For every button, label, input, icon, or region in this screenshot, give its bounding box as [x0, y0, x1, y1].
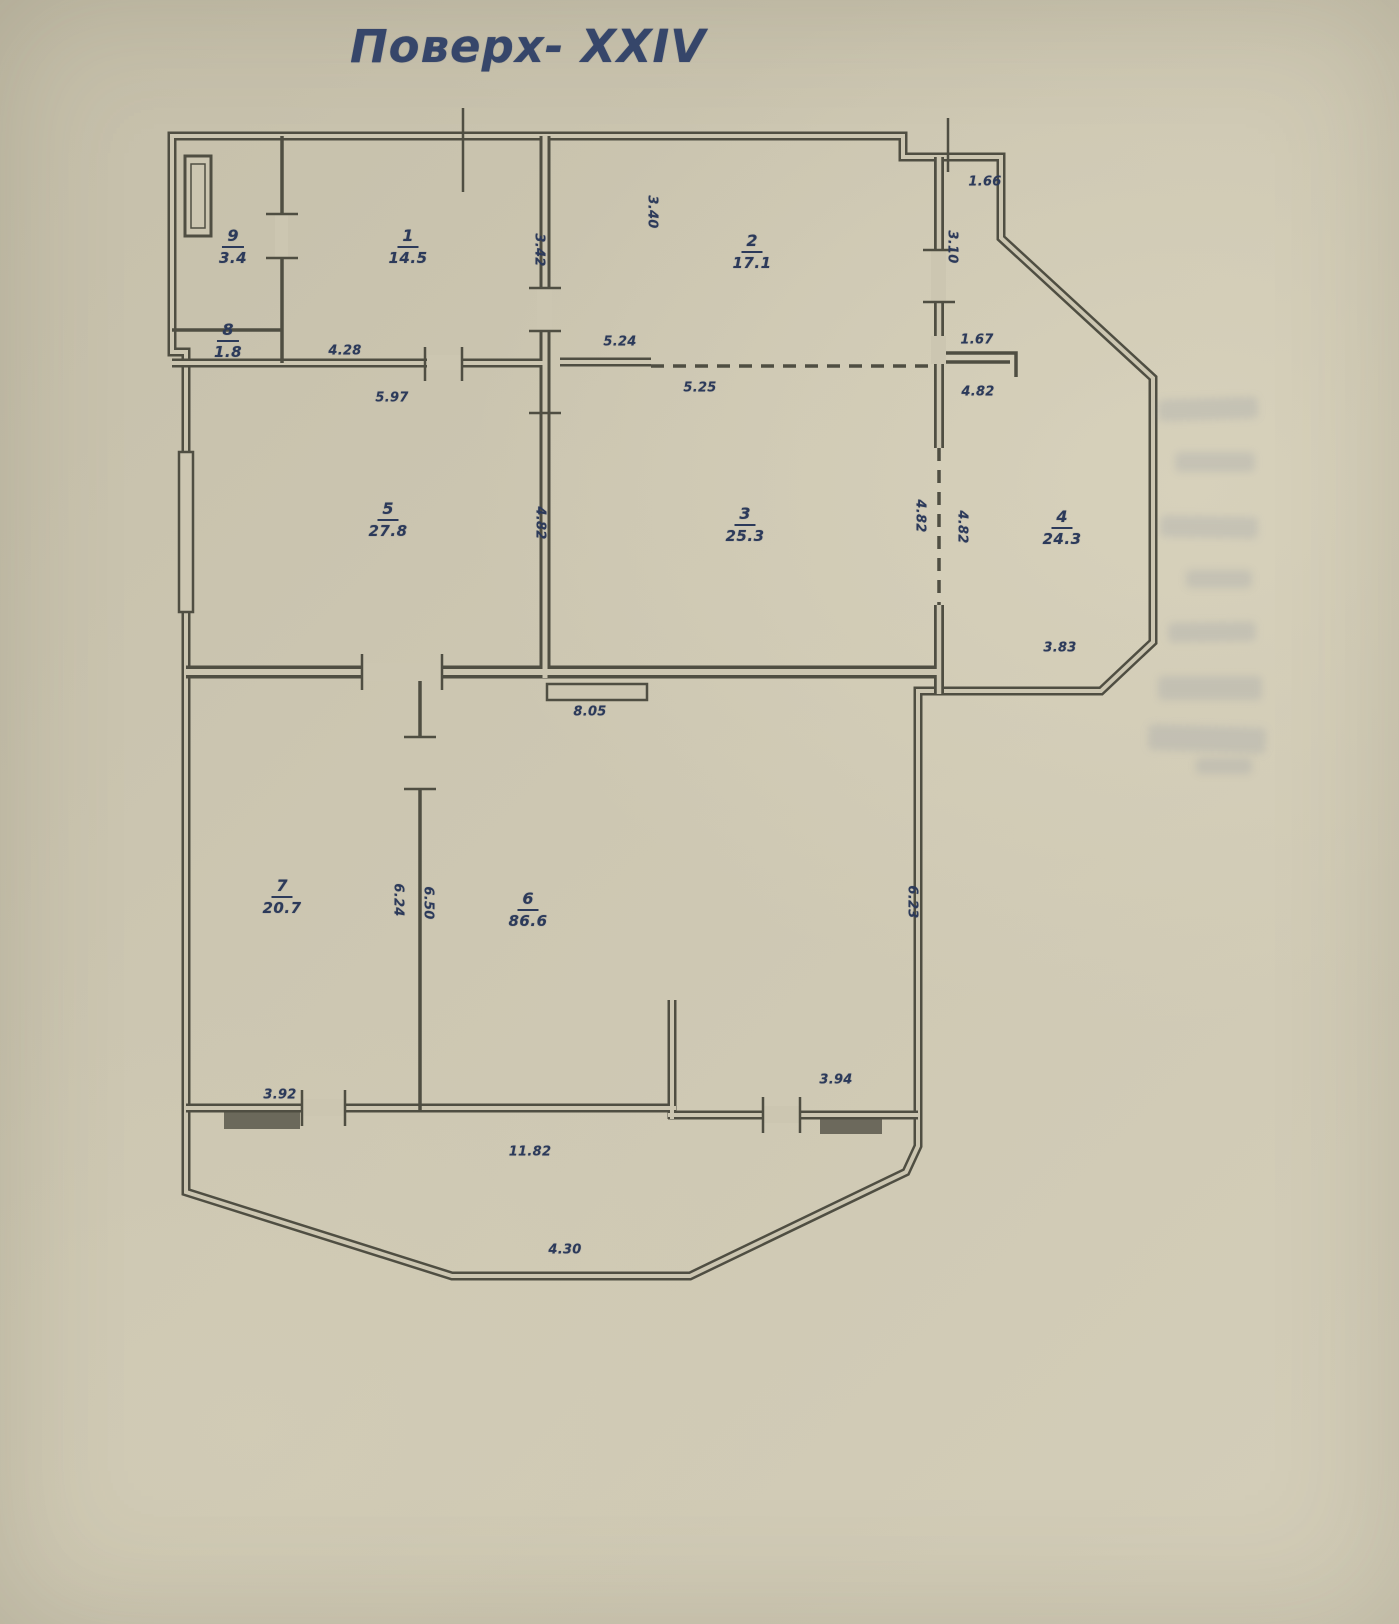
scanned-floor-plan-page: Поверх- XXIV	[0, 0, 1399, 1624]
tick-marks	[266, 108, 955, 1133]
dashed-walls	[651, 366, 939, 605]
wall-features	[179, 156, 882, 1134]
shaft-top-left-inner	[191, 164, 205, 228]
sill-right	[820, 1119, 882, 1134]
sill-left	[224, 1112, 300, 1129]
interior-walls-thick	[172, 136, 939, 1119]
window-left	[179, 452, 193, 612]
floor-plan-drawing	[0, 0, 1399, 1624]
interior-walls-thin	[172, 136, 1016, 1112]
niche-mid	[547, 684, 647, 700]
